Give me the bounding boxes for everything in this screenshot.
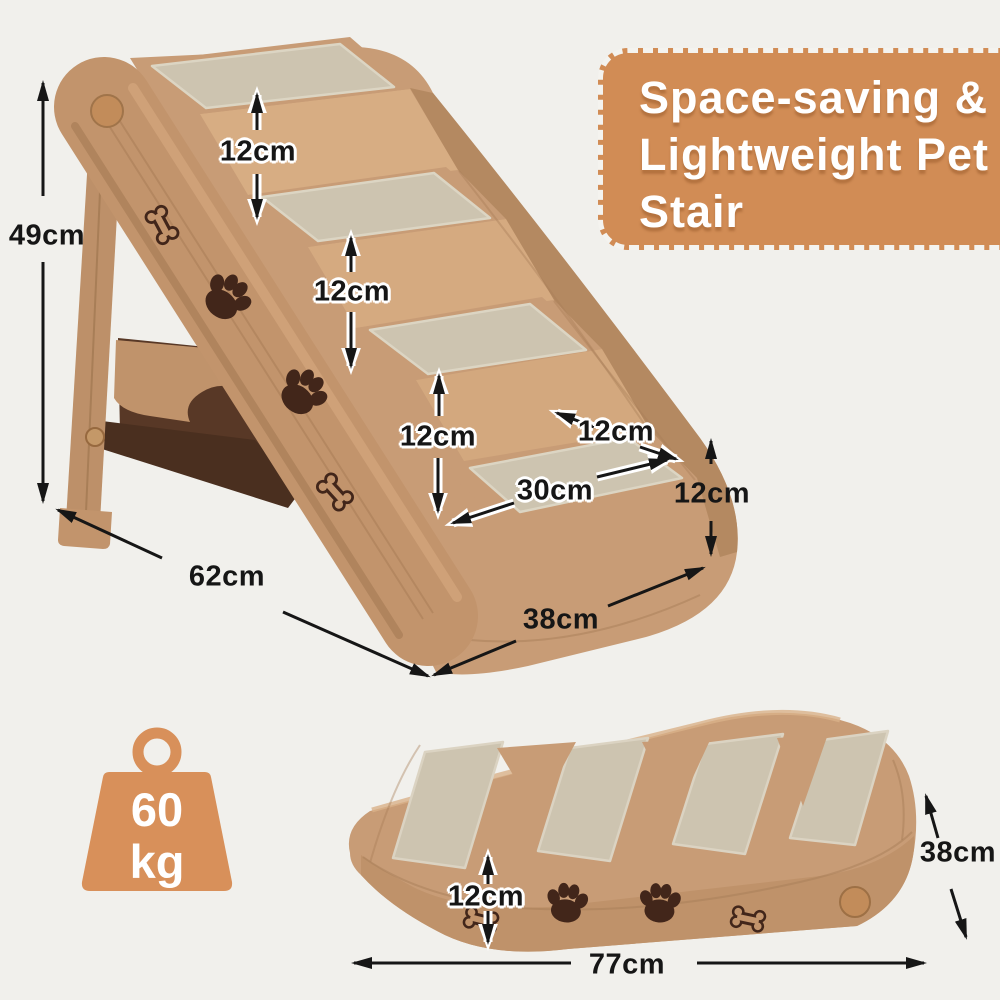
dim-folded-length: 77cm [589,951,665,980]
dim-unfolded-step-depth: 12cm [578,418,654,447]
weight-capacity-label: 60 kg [92,784,222,888]
title-badge: Space-saving & Lightweight Pet Stair [598,48,1000,250]
pet-stair-dimension-image: Space-saving & Lightweight Pet Stair 60 … [0,0,1000,1000]
knob-icon [840,887,870,917]
dim-folded-thickness: 12cm [448,883,524,912]
badge-title-line: Space-saving & [639,69,1000,126]
badge-title-line: Lightweight Pet [639,126,1000,183]
dim-unfolded-middle-step-rise: 12cm [314,278,390,307]
dim-unfolded-top-step-rise: 12cm [220,138,296,167]
rear-hinge-knob-icon [86,428,104,446]
hinge-knob-icon [91,95,123,127]
badge-title: Space-saving & Lightweight Pet Stair [603,53,1000,240]
folded-stair-illustration [349,712,916,951]
dimension-arrow [926,796,938,838]
weight-unit: kg [92,836,222,888]
badge-title-line: Stair [639,183,1000,240]
dim-unfolded-base-width: 38cm [523,606,599,635]
weight-value: 60 [92,784,222,836]
dim-folded-width: 38cm [920,839,996,868]
dim-unfolded-step-width: 30cm [517,477,593,506]
dim-unfolded-base-depth: 62cm [189,563,265,592]
dim-unfolded-base-height: 12cm [674,480,750,509]
dim-unfolded-total-height: 49cm [9,222,85,251]
dimension-arrow [951,889,966,937]
dim-unfolded-bottom-step-rise: 12cm [400,423,476,452]
